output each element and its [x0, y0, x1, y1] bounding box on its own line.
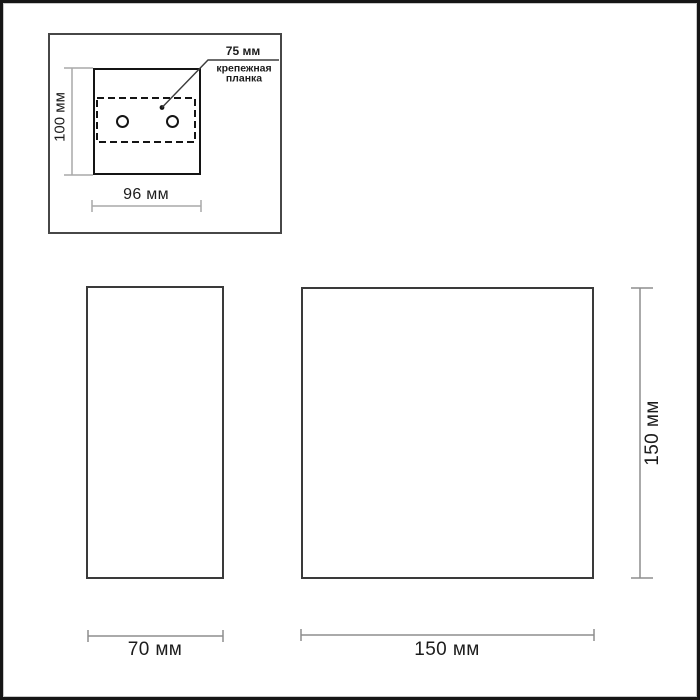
dim-label-plate-width: 96 мм	[123, 186, 169, 204]
dim-label-hole-spacing: 75 мм	[226, 44, 260, 58]
dim-label-plate-height: 100 мм	[52, 92, 69, 142]
mounting-hole-left	[117, 116, 128, 127]
dim-label-front-height: 150 мм	[642, 400, 664, 466]
mounting-hole-right	[167, 116, 178, 127]
dim-label-side-width: 70 мм	[128, 639, 183, 661]
dimension-drawing-page: 100 мм 96 мм 75 мм крепежная планка 70 м…	[0, 0, 700, 700]
diagram-linework	[3, 3, 700, 700]
mounting-plate-note: крепежная планка	[216, 65, 271, 84]
mounting-plate-dashed-outline	[97, 98, 195, 142]
dim-label-front-width: 150 мм	[414, 639, 480, 661]
